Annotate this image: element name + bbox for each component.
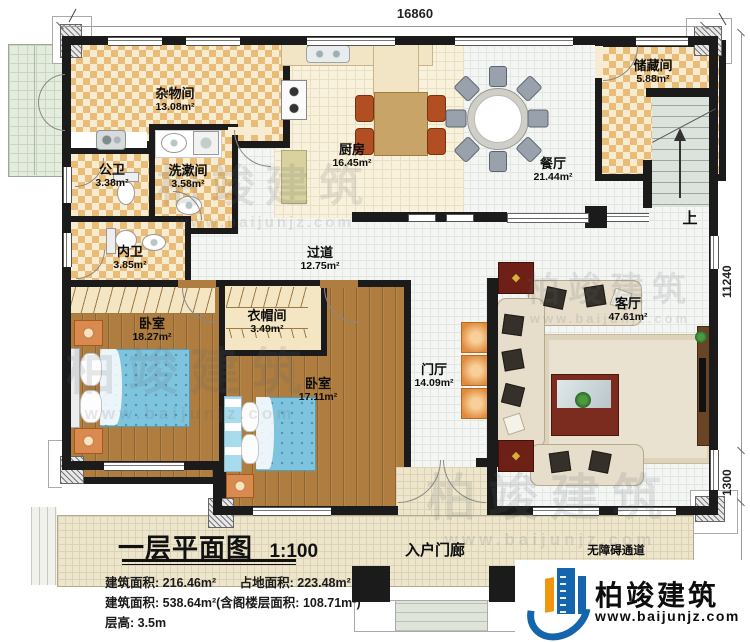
logo-building-icon	[557, 568, 575, 614]
sofa-cushion	[549, 451, 572, 474]
label-hallway: 过道12.75m²	[270, 245, 370, 273]
window	[533, 507, 599, 516]
company-logo: 柏竣建筑 www.baijunjz.com	[515, 560, 750, 638]
door-gap	[178, 280, 216, 288]
bed-fold	[100, 349, 122, 425]
window	[307, 37, 395, 46]
label-bedroom-1: 卧室18.27m²	[102, 316, 202, 344]
sofa-cushion	[588, 450, 611, 473]
dimension-porch-upper: 1300	[720, 446, 734, 496]
title-info-line2: 建筑面积: 538.64m²(含阁楼层面积: 108.71m²)	[105, 592, 465, 611]
door-gap	[595, 46, 603, 78]
end-table: ◆	[498, 440, 534, 472]
window	[63, 167, 72, 203]
logo-building-icon	[578, 576, 586, 614]
title-underline	[122, 559, 296, 562]
window	[186, 37, 240, 46]
kitchen-chair	[427, 128, 446, 155]
washer-icon	[96, 130, 126, 150]
west-steps	[31, 507, 57, 585]
dining-chair	[446, 110, 467, 128]
dining-table-top	[474, 95, 522, 143]
label-private-bath: 内卫3.85m²	[90, 244, 170, 272]
window	[710, 236, 719, 269]
label-bedroom-2: 卧室17.11m²	[268, 376, 368, 404]
kitchen-island	[373, 42, 419, 94]
pillow	[80, 353, 102, 386]
label-living: 客厅47.61m²	[578, 296, 678, 324]
area-footprint: 占地面积: 223.48m²	[240, 576, 351, 590]
transom-window	[607, 213, 649, 222]
label-public-bath: 公卫3.38m²	[72, 162, 152, 190]
wall-window-box	[408, 214, 436, 222]
logo-website: www.baijunjz.com	[595, 608, 750, 624]
sink-icon	[161, 133, 187, 153]
wall-south-living	[487, 506, 718, 515]
pillow	[241, 402, 259, 432]
top-dimension-line	[60, 26, 705, 27]
bed-fold	[256, 397, 274, 469]
label-stairs-up: 上	[678, 210, 702, 228]
nightstand	[226, 474, 254, 498]
dimension-right-height: 11240	[720, 228, 734, 298]
stairs-arrow-head-icon	[674, 128, 686, 141]
dining-chair	[489, 66, 507, 87]
window	[253, 507, 331, 516]
area-built: 建筑面积: 216.46m²	[105, 576, 216, 590]
end-table: ◆	[498, 262, 534, 294]
title-info-line1: 建筑面积: 216.46m² 占地面积: 223.48m²	[105, 572, 445, 591]
window	[104, 462, 184, 471]
sofa-cushion	[543, 286, 567, 310]
label-foyer: 门厅14.09m²	[384, 362, 484, 390]
sofa-cushion	[502, 314, 525, 337]
sofa-bottom	[530, 444, 644, 486]
window	[710, 450, 719, 490]
pillow	[80, 390, 102, 423]
kitchen-chair	[355, 95, 374, 122]
title-underline	[122, 564, 296, 565]
dimension-top-width: 16860	[370, 6, 460, 21]
dryer-icon	[193, 131, 219, 155]
kitchen-sink-icon	[306, 45, 350, 63]
window	[455, 37, 573, 46]
wall-stairs-top	[646, 88, 712, 97]
tv-icon	[699, 358, 706, 412]
cloakroom-hanger-rail	[226, 287, 308, 308]
wall-stairs-left	[643, 160, 652, 208]
pillow	[241, 434, 259, 464]
label-kitchen: 厨房16.45m²	[302, 142, 402, 170]
sliding-door	[507, 213, 589, 223]
label-storeroom: 储藏间5.88m²	[603, 58, 703, 86]
window	[108, 37, 162, 46]
label-washroom: 洗漱间3.58m²	[148, 163, 228, 191]
label-entry-porch: 入户门廊	[385, 542, 485, 560]
side-porch-divider	[34, 44, 35, 175]
kitchen-chair	[427, 95, 446, 122]
nightstand	[74, 428, 103, 454]
door-gap	[320, 280, 358, 288]
stairs-direction-arrow	[679, 140, 681, 198]
floor-plan-canvas: 16860 11240 1300 2080	[0, 0, 750, 642]
window	[63, 233, 72, 267]
plant-icon	[575, 392, 591, 408]
wall-window-box	[446, 214, 474, 222]
stove-icon	[281, 80, 307, 120]
label-dining: 餐厅21.44m²	[503, 156, 603, 184]
label-cloakroom: 衣帽间3.49m²	[217, 308, 317, 336]
bed-headboard	[224, 396, 242, 472]
dining-chair	[528, 110, 549, 128]
logo-building-icon	[545, 577, 554, 613]
nightstand	[74, 320, 103, 346]
sofa-cushion	[501, 348, 524, 371]
window	[618, 507, 676, 516]
label-storage-utility: 杂物间13.08m²	[125, 86, 225, 114]
wall-foyer-living	[487, 278, 498, 460]
label-accessible-ramp: 无障碍通道	[566, 545, 666, 559]
title-info-line3: 层高: 3.5m	[105, 612, 305, 631]
window	[636, 37, 688, 46]
plant-icon	[695, 331, 707, 343]
